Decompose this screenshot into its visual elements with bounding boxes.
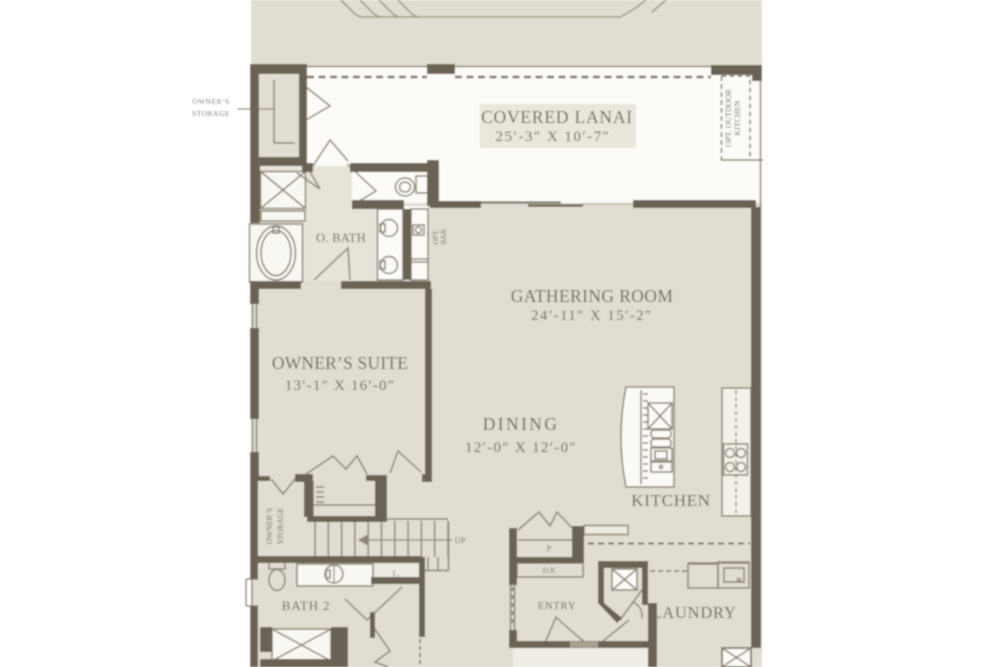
svg-text:DINING: DINING	[483, 414, 560, 434]
svg-text:ENTRY: ENTRY	[538, 601, 576, 612]
svg-text:24′-11″ X 15′-2″: 24′-11″ X 15′-2″	[531, 308, 653, 324]
svg-text:COVERED LANAI: COVERED LANAI	[481, 107, 633, 127]
svg-text:OWNER’S: OWNER’S	[265, 508, 274, 544]
svg-text:STORAGE: STORAGE	[276, 508, 285, 545]
svg-text:UP: UP	[455, 535, 466, 545]
svg-text:LAUNDRY: LAUNDRY	[651, 603, 736, 622]
svg-text:D.R.: D.R.	[543, 566, 557, 575]
svg-text:BAR: BAR	[439, 229, 448, 244]
svg-text:12′-0″ X 12′-0″: 12′-0″ X 12′-0″	[465, 440, 577, 456]
svg-text:O. BATH: O. BATH	[316, 231, 366, 245]
svg-text:BATH 2: BATH 2	[282, 598, 331, 613]
svg-text:KITCHEN: KITCHEN	[631, 491, 711, 510]
svg-text:KITCHEN: KITCHEN	[733, 100, 742, 135]
svg-text:P: P	[547, 544, 552, 553]
svg-text:25′-3″ X 10′-7″: 25′-3″ X 10′-7″	[496, 129, 611, 145]
svg-text:OPT. OUTDOOR: OPT. OUTDOOR	[724, 89, 733, 147]
svg-text:OWNER’S SUITE: OWNER’S SUITE	[272, 353, 408, 373]
svg-text:GATHERING ROOM: GATHERING ROOM	[511, 286, 674, 306]
svg-text:OWNER’S: OWNER’S	[192, 97, 230, 106]
svg-text:STORAGE: STORAGE	[192, 109, 230, 118]
svg-text:13′-1″ X 16′-0″: 13′-1″ X 16′-0″	[285, 378, 395, 394]
svg-text:L.: L.	[393, 569, 400, 578]
